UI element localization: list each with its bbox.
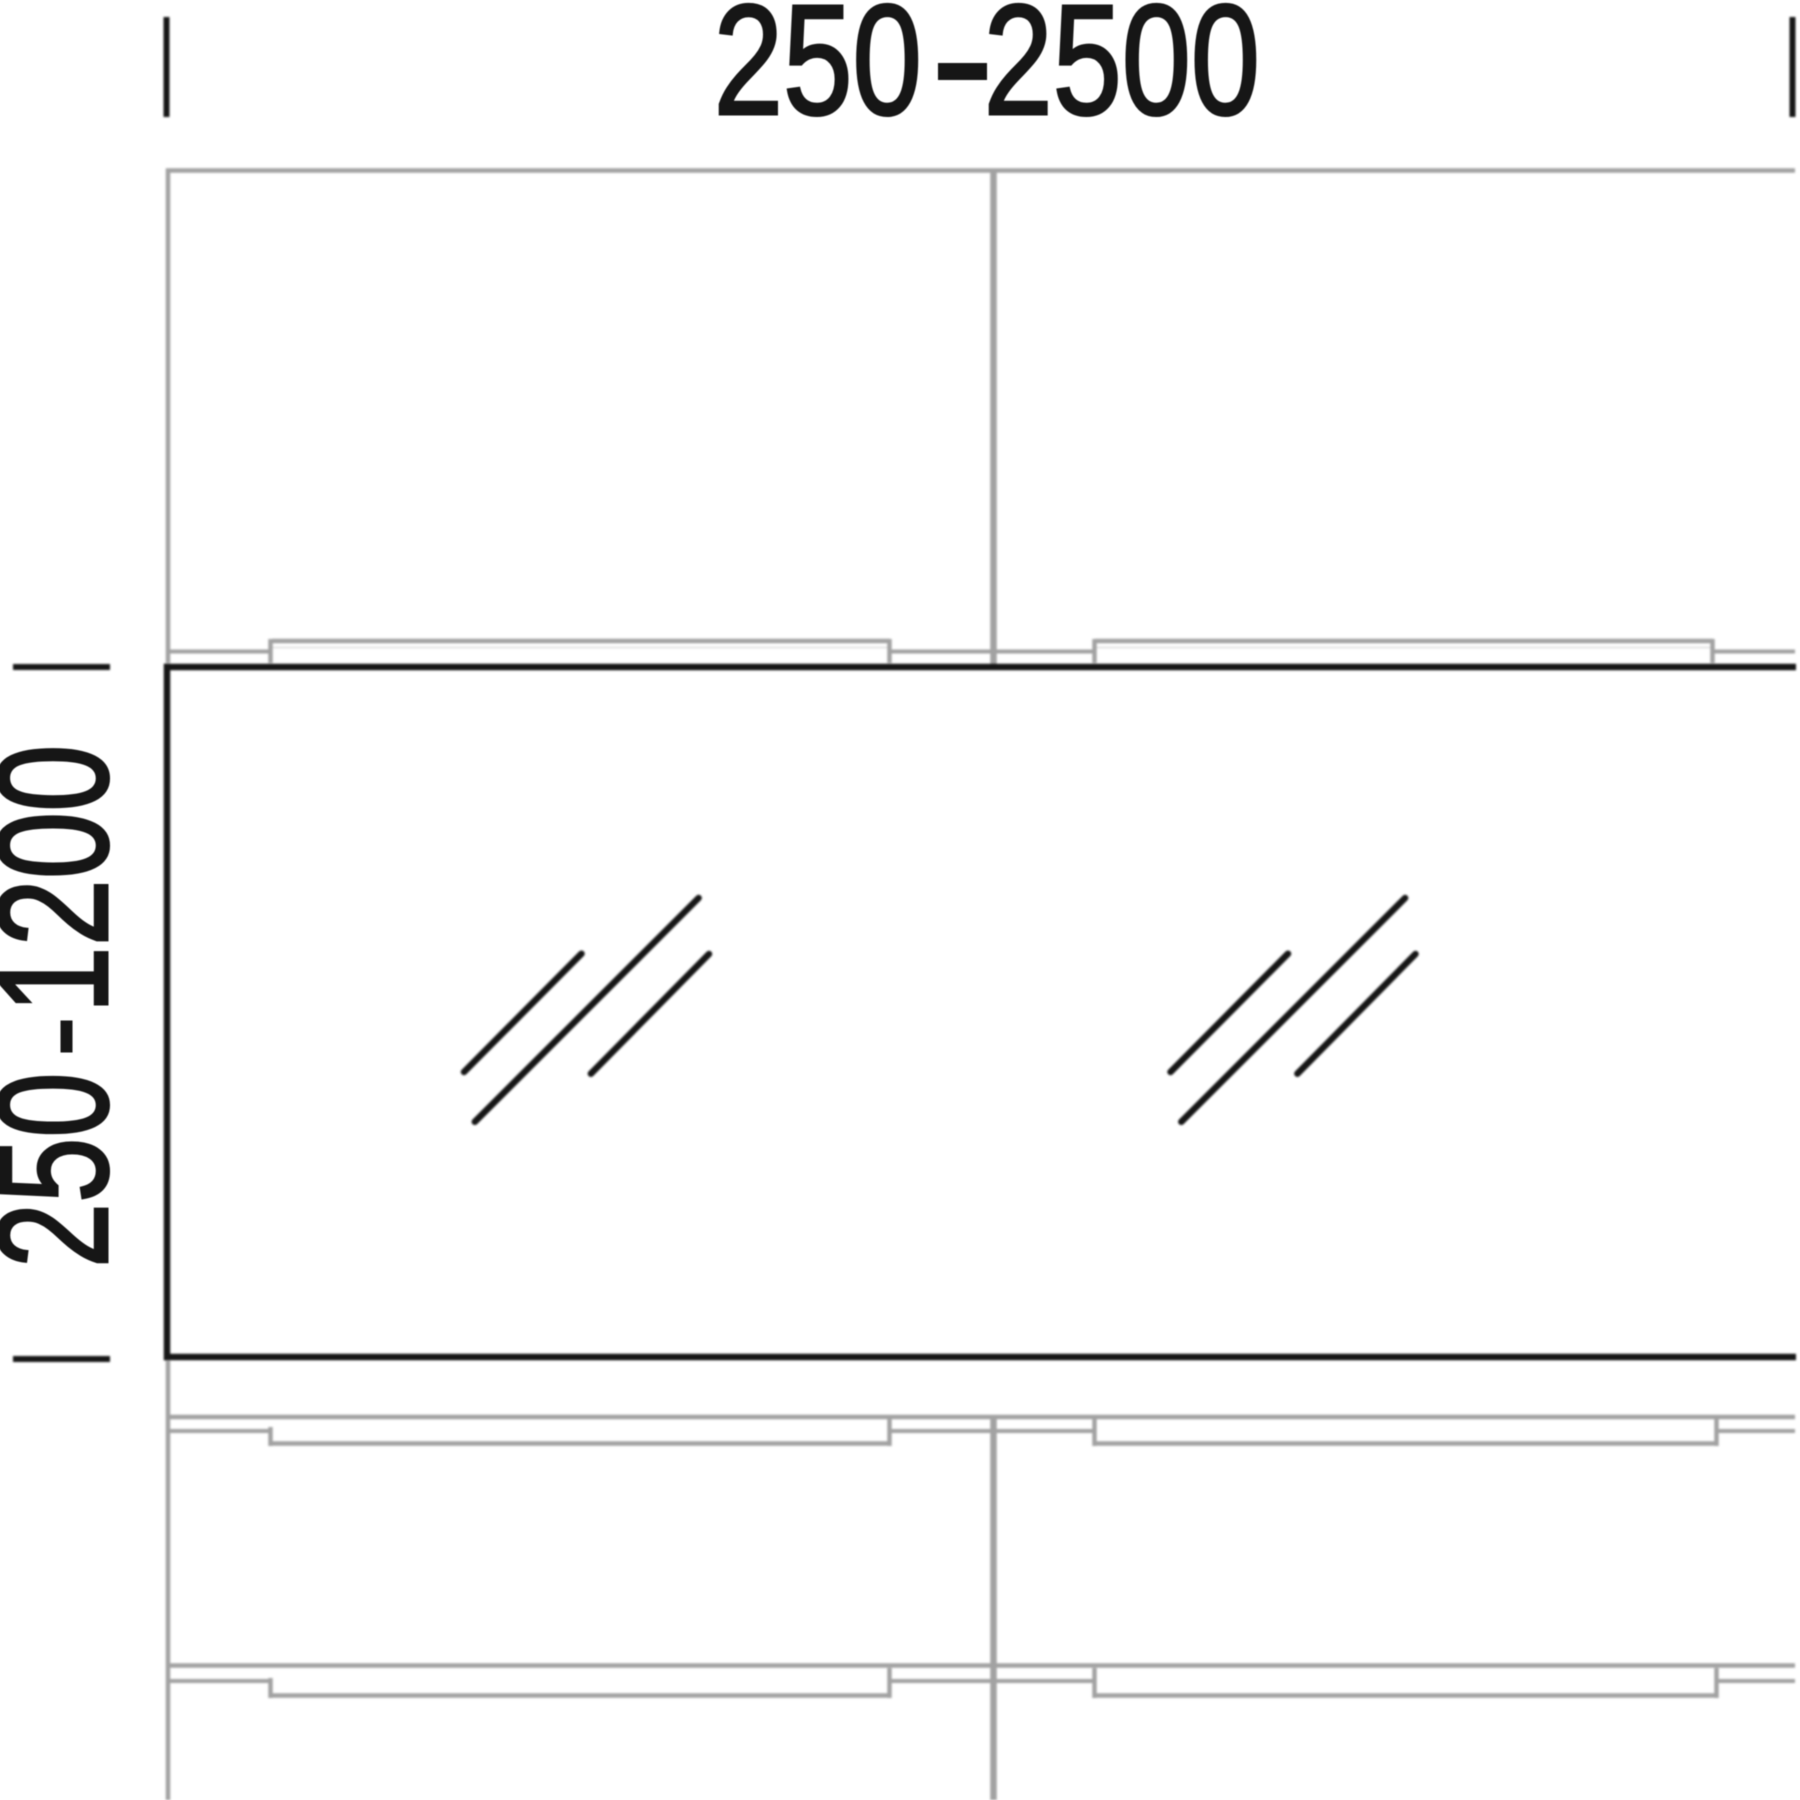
svg-text:250: 250 (714, 0, 922, 148)
svg-text:1200: 1200 (0, 745, 141, 1014)
svg-text:250: 250 (0, 1072, 141, 1268)
svg-text:2500: 2500 (984, 0, 1260, 147)
